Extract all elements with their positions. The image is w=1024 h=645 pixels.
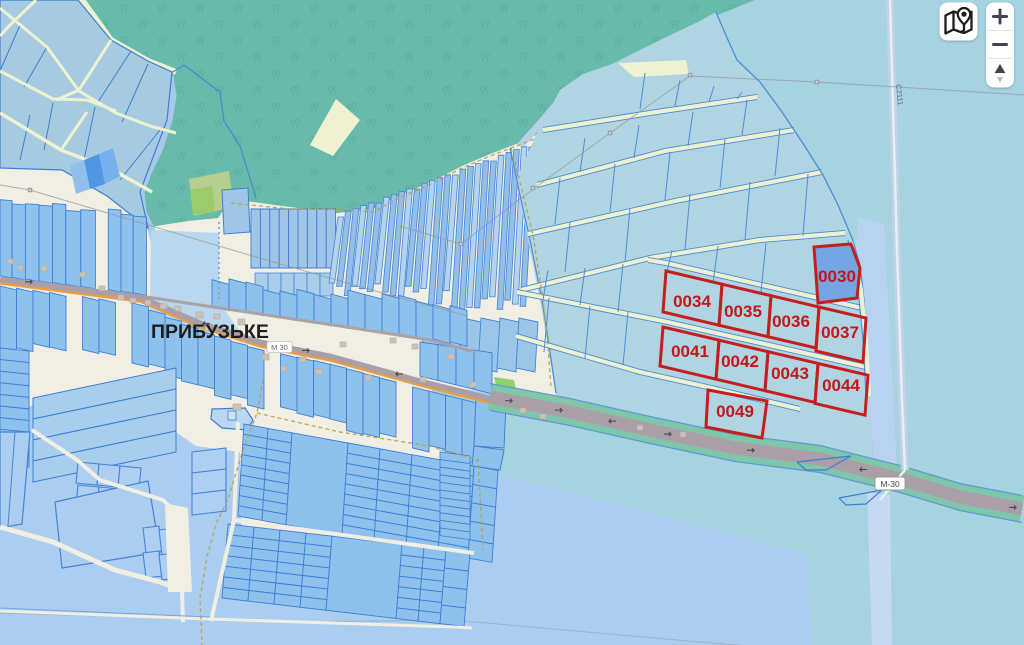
svg-text:ПРИБУЗЬКЕ: ПРИБУЗЬКЕ (151, 321, 269, 343)
svg-text:М-30: М-30 (880, 479, 900, 489)
svg-text:0041: 0041 (671, 342, 709, 361)
svg-text:М 30: М 30 (271, 343, 288, 352)
svg-text:0030: 0030 (818, 267, 856, 286)
svg-text:0042: 0042 (721, 352, 759, 371)
svg-text:0037: 0037 (821, 323, 859, 342)
svg-text:0036: 0036 (772, 312, 810, 331)
svg-text:0043: 0043 (771, 364, 809, 383)
svg-text:0035: 0035 (724, 302, 762, 321)
svg-text:0034: 0034 (673, 292, 711, 311)
svg-text:0049: 0049 (716, 402, 754, 421)
svg-text:0044: 0044 (822, 376, 860, 395)
